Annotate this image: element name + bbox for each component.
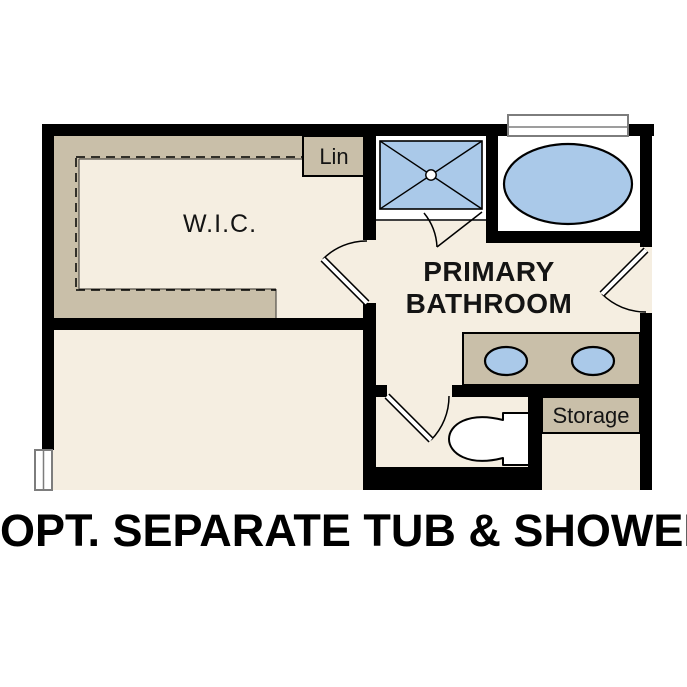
bathroom-label-line1: PRIMARY [423,256,555,287]
sink-right [572,347,614,375]
tub-area [498,136,640,231]
wall-shower-tub [486,124,498,243]
shower-drain [426,170,436,180]
wic-label: W.I.C. [183,210,257,238]
floor-plan-page: W.I.C. Lin PRIMARY BATHROOM Storage OPT.… [0,0,687,687]
wall-wic-bedroom [42,318,376,330]
wall-toilet-top-left [376,385,387,397]
bathroom-label-line2: BATHROOM [406,288,573,319]
wall-exterior-left [42,124,54,450]
wic-shelf-bottom [54,289,276,318]
toilet [449,413,530,465]
vanity [463,333,640,385]
wall-vanity-bottom [452,385,652,397]
wall-exterior-right-upper [640,124,652,247]
wall-wic-bath-lower [363,303,376,490]
window-above-tub [508,115,628,136]
linen-label: Lin [319,144,348,169]
storage-label: Storage [552,403,629,428]
wall-toilet-bottom [363,467,540,490]
wall-exterior-right-lower [640,313,652,490]
wic-shelf-top [54,136,303,159]
plan-caption: OPT. SEPARATE TUB & SHOWER [0,508,687,553]
sink-left [485,347,527,375]
bathtub [504,144,632,224]
wall-tub-bottom [486,231,652,243]
wall-wic-bath-upper [363,124,376,240]
shower [376,136,486,221]
floor-plan-drawing: W.I.C. Lin PRIMARY BATHROOM Storage [0,0,687,687]
